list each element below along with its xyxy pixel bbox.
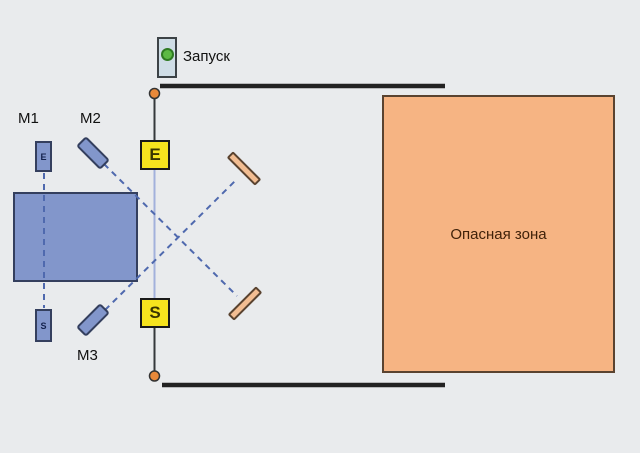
mirror-m3-label: M3 xyxy=(77,347,98,364)
m1-receiver-letter: S xyxy=(40,321,46,331)
m1-emitter-letter: E xyxy=(40,152,46,162)
m1-receiver-unit: S xyxy=(35,309,52,342)
emitter-letter: E xyxy=(149,145,160,165)
danger-zone-label: Опасная зона xyxy=(450,226,546,243)
receiver-letter: S xyxy=(149,303,160,323)
deflecting-mirror-top xyxy=(227,151,262,186)
mirror-m2 xyxy=(76,136,110,170)
mirror-m1-label: M1 xyxy=(18,110,39,127)
start-button-label: Запуск xyxy=(183,48,230,65)
bottom-junction-dot xyxy=(150,371,160,381)
diagram-canvas: Опасная зона Запуск M1 M2 M3 E S E S xyxy=(0,0,640,453)
receiver-box: S xyxy=(140,298,170,328)
danger-zone: Опасная зона xyxy=(382,95,615,373)
start-indicator-icon xyxy=(161,48,174,61)
mirror-m3 xyxy=(76,303,110,337)
m1-emitter-unit: E xyxy=(35,141,52,172)
mirror-m2-label: M2 xyxy=(80,110,101,127)
top-junction-dot xyxy=(150,89,160,99)
start-button xyxy=(157,37,177,78)
deflecting-mirror-bottom xyxy=(228,286,263,321)
machine-block xyxy=(13,192,138,282)
emitter-box: E xyxy=(140,140,170,170)
